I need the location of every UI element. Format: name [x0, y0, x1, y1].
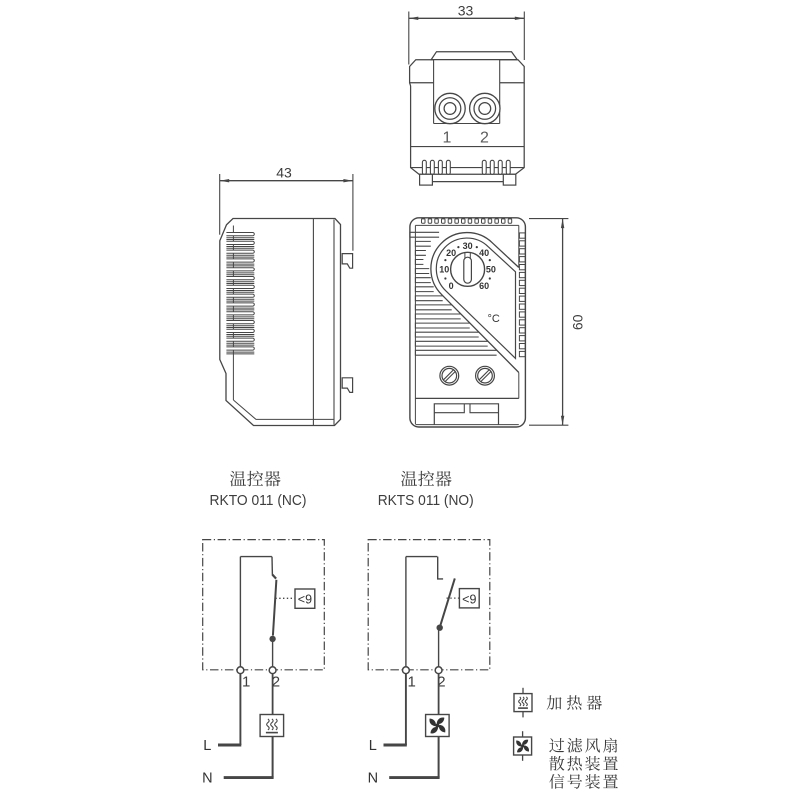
- svg-text:60: 60: [570, 314, 586, 330]
- svg-text:<9: <9: [462, 592, 476, 606]
- svg-text:43: 43: [276, 165, 292, 181]
- svg-text:33: 33: [458, 3, 474, 19]
- svg-text:2: 2: [480, 130, 489, 147]
- svg-text:1: 1: [242, 674, 250, 691]
- svg-text:<9: <9: [298, 593, 312, 607]
- svg-text:RKTO 011 (NC): RKTO 011 (NC): [210, 492, 307, 509]
- svg-text:N: N: [368, 770, 378, 786]
- svg-text:°C: °C: [488, 313, 500, 325]
- svg-text:30: 30: [463, 241, 473, 251]
- svg-text:50: 50: [486, 264, 496, 274]
- svg-text:1: 1: [408, 674, 416, 691]
- svg-text:RKTS 011 (NO): RKTS 011 (NO): [378, 492, 474, 509]
- svg-text:10: 10: [439, 264, 449, 274]
- svg-text:20: 20: [446, 248, 456, 258]
- svg-text:L: L: [369, 738, 377, 754]
- svg-text:0: 0: [449, 281, 454, 291]
- svg-text:N: N: [202, 770, 212, 786]
- svg-text:L: L: [203, 738, 211, 754]
- svg-text:60: 60: [479, 281, 489, 291]
- svg-text:40: 40: [479, 248, 489, 258]
- svg-text:1: 1: [443, 130, 452, 147]
